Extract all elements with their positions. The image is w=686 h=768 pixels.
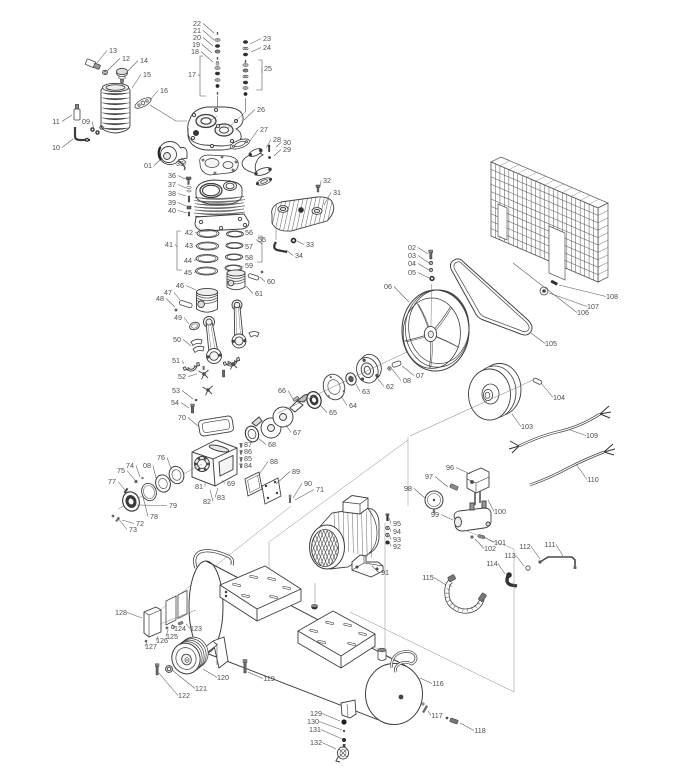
svg-text:42: 42 — [185, 228, 193, 237]
svg-text:15: 15 — [143, 70, 151, 79]
svg-text:66: 66 — [278, 386, 286, 395]
svg-text:37: 37 — [168, 180, 176, 189]
svg-text:55: 55 — [258, 235, 266, 244]
svg-text:35: 35 — [176, 159, 184, 168]
svg-text:93: 93 — [393, 535, 401, 544]
svg-text:95: 95 — [393, 519, 401, 528]
svg-text:117: 117 — [431, 711, 442, 720]
svg-text:34: 34 — [295, 251, 303, 260]
svg-text:115: 115 — [422, 573, 433, 582]
svg-text:43: 43 — [185, 241, 193, 250]
svg-text:116: 116 — [432, 679, 443, 688]
svg-text:122: 122 — [178, 691, 190, 700]
svg-text:109: 109 — [586, 431, 598, 440]
svg-text:90: 90 — [304, 479, 312, 488]
svg-text:105: 105 — [545, 339, 557, 348]
svg-text:06: 06 — [384, 282, 392, 291]
svg-text:104: 104 — [553, 393, 565, 402]
svg-text:107: 107 — [587, 302, 599, 311]
svg-text:24: 24 — [263, 43, 271, 52]
svg-text:13: 13 — [109, 46, 117, 55]
svg-text:100: 100 — [494, 507, 506, 516]
svg-text:09: 09 — [82, 117, 90, 126]
svg-text:50: 50 — [173, 335, 181, 344]
svg-text:53: 53 — [172, 386, 180, 395]
svg-text:59: 59 — [245, 261, 253, 270]
svg-text:82: 82 — [203, 497, 211, 506]
svg-text:126: 126 — [156, 636, 168, 645]
svg-text:31: 31 — [333, 188, 341, 197]
svg-text:30: 30 — [283, 138, 291, 147]
svg-text:74: 74 — [126, 461, 134, 470]
svg-text:88: 88 — [270, 457, 278, 466]
svg-text:63: 63 — [362, 387, 370, 396]
svg-text:67: 67 — [293, 428, 301, 437]
svg-text:51: 51 — [172, 356, 180, 365]
svg-text:108: 108 — [606, 292, 618, 301]
svg-text:112: 112 — [519, 542, 530, 551]
svg-text:57: 57 — [245, 242, 253, 251]
svg-text:32: 32 — [323, 176, 331, 185]
svg-text:17: 17 — [188, 70, 196, 79]
svg-text:73: 73 — [129, 525, 137, 534]
svg-text:81: 81 — [195, 482, 203, 491]
svg-text:48: 48 — [156, 294, 164, 303]
svg-text:77: 77 — [108, 477, 116, 486]
svg-text:72: 72 — [136, 519, 144, 528]
svg-text:12: 12 — [122, 54, 130, 63]
svg-text:14: 14 — [140, 56, 148, 65]
svg-text:121: 121 — [195, 684, 207, 693]
svg-text:25: 25 — [264, 64, 272, 73]
svg-text:98: 98 — [404, 484, 412, 493]
svg-text:79: 79 — [169, 501, 177, 510]
svg-text:60: 60 — [267, 277, 275, 286]
svg-text:36: 36 — [168, 171, 176, 180]
svg-text:103: 103 — [521, 422, 533, 431]
svg-text:56: 56 — [245, 228, 253, 237]
svg-text:47: 47 — [164, 288, 172, 297]
svg-text:41: 41 — [165, 240, 173, 249]
svg-text:76: 76 — [157, 453, 165, 462]
svg-text:132: 132 — [310, 738, 322, 747]
svg-text:96: 96 — [446, 463, 454, 472]
svg-text:114: 114 — [486, 559, 497, 568]
svg-text:91: 91 — [381, 568, 389, 577]
svg-text:16: 16 — [160, 86, 168, 95]
svg-text:23: 23 — [263, 34, 271, 43]
svg-text:11: 11 — [52, 117, 59, 126]
svg-text:83: 83 — [217, 493, 225, 502]
svg-text:64: 64 — [349, 401, 357, 410]
svg-text:102: 102 — [484, 544, 496, 553]
svg-text:70: 70 — [178, 413, 186, 422]
svg-text:120: 120 — [217, 673, 229, 682]
svg-text:111: 111 — [545, 540, 556, 549]
svg-text:71: 71 — [316, 485, 324, 494]
svg-text:05: 05 — [408, 268, 416, 277]
svg-text:118: 118 — [474, 726, 485, 735]
svg-text:110: 110 — [587, 475, 598, 484]
svg-text:28: 28 — [273, 135, 281, 144]
svg-text:49: 49 — [174, 313, 182, 322]
svg-text:46: 46 — [176, 281, 184, 290]
svg-text:33: 33 — [306, 240, 314, 249]
svg-text:52: 52 — [178, 372, 186, 381]
svg-text:87: 87 — [244, 440, 252, 449]
svg-text:127: 127 — [145, 642, 157, 651]
svg-text:119: 119 — [263, 674, 274, 683]
svg-text:54: 54 — [171, 398, 179, 407]
svg-text:65: 65 — [329, 408, 337, 417]
svg-text:44: 44 — [184, 256, 192, 265]
svg-text:01: 01 — [144, 161, 152, 170]
svg-text:69: 69 — [227, 479, 235, 488]
svg-text:22: 22 — [193, 19, 201, 28]
svg-text:08: 08 — [403, 376, 411, 385]
svg-text:38: 38 — [168, 189, 176, 198]
svg-text:97: 97 — [425, 472, 433, 481]
svg-text:40: 40 — [168, 206, 176, 215]
svg-text:68: 68 — [268, 440, 276, 449]
svg-text:94: 94 — [393, 527, 401, 536]
svg-text:128: 128 — [115, 608, 127, 617]
svg-text:62: 62 — [386, 382, 394, 391]
svg-text:78: 78 — [150, 512, 158, 521]
svg-text:07: 07 — [416, 371, 424, 380]
svg-text:10: 10 — [52, 143, 60, 152]
svg-text:123: 123 — [190, 624, 202, 633]
svg-text:08: 08 — [143, 461, 151, 470]
svg-text:99: 99 — [431, 510, 439, 519]
svg-text:75: 75 — [117, 466, 125, 475]
svg-text:45: 45 — [184, 268, 192, 277]
svg-text:04: 04 — [408, 259, 416, 268]
svg-text:61: 61 — [255, 289, 263, 298]
svg-text:26: 26 — [257, 105, 265, 114]
svg-text:27: 27 — [260, 125, 268, 134]
svg-text:89: 89 — [292, 467, 300, 476]
svg-text:131: 131 — [309, 725, 321, 734]
svg-text:113: 113 — [504, 551, 515, 560]
